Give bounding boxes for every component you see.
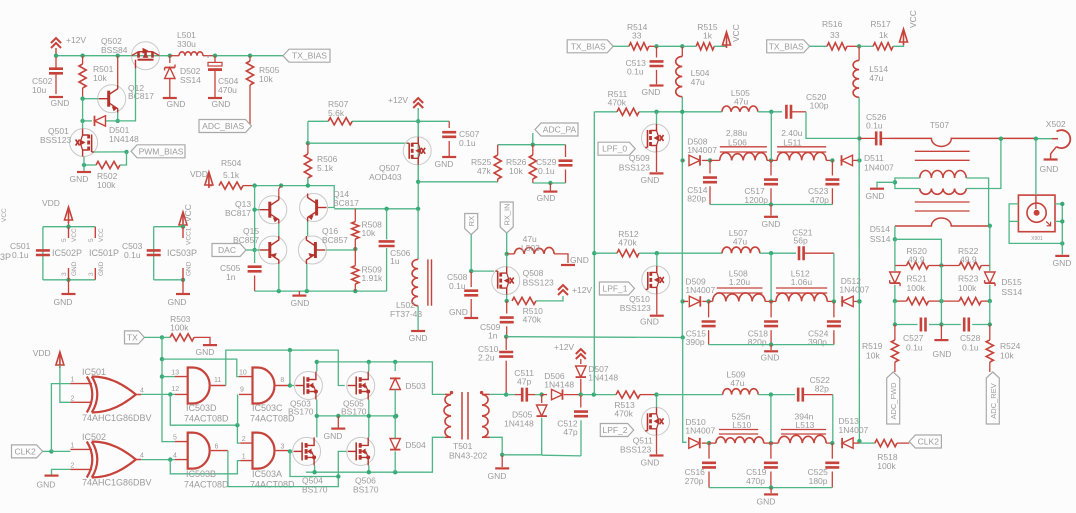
svg-text:C527: C527 [903, 333, 924, 343]
svg-text:GND: GND [537, 193, 556, 203]
svg-text:X502: X502 [1046, 119, 1066, 129]
svg-text:VCC: VCC [183, 204, 193, 222]
svg-text:13: 13 [171, 370, 179, 377]
svg-text:GND: GND [409, 333, 428, 343]
svg-text:820p: 820p [687, 194, 706, 204]
svg-text:390p: 390p [808, 337, 827, 347]
svg-text:3: 3 [281, 444, 285, 451]
svg-text:ADC_PA: ADC_PA [543, 125, 577, 135]
svg-text:10k: 10k [866, 351, 880, 361]
svg-text:GND: GND [757, 497, 776, 507]
svg-text:R521: R521 [907, 274, 928, 284]
svg-text:49.9: 49.9 [960, 255, 977, 265]
svg-text:IC501: IC501 [82, 367, 106, 377]
svg-text:270p: 270p [685, 476, 704, 486]
svg-text:GND: GND [642, 87, 661, 97]
svg-text:1N4007: 1N4007 [687, 145, 717, 155]
svg-text:74ACT08D: 74ACT08D [250, 480, 295, 490]
svg-text:GND: GND [70, 174, 89, 184]
svg-text:47p: 47p [563, 427, 577, 437]
svg-text:10k: 10k [93, 73, 107, 83]
svg-text:D511: D511 [864, 153, 884, 163]
svg-text:LPF_2: LPF_2 [602, 425, 627, 435]
svg-text:PWM_BIAS: PWM_BIAS [139, 146, 184, 156]
svg-text:+12V: +12V [554, 342, 574, 352]
svg-text:1: 1 [242, 454, 246, 461]
svg-text:33: 33 [830, 30, 840, 40]
svg-text:BSS123: BSS123 [620, 445, 651, 455]
svg-text:ADC_REV: ADC_REV [989, 383, 998, 418]
svg-text:FT37-43: FT37-43 [390, 309, 422, 319]
svg-text:L506: L506 [728, 137, 747, 147]
svg-text:74AHC1G86DBV: 74AHC1G86DBV [82, 478, 152, 488]
svg-text:33: 33 [632, 31, 642, 41]
svg-text:82p: 82p [815, 384, 829, 394]
svg-text:BS170: BS170 [341, 407, 367, 417]
svg-text:GND: GND [212, 99, 231, 109]
svg-text:BSS123: BSS123 [619, 163, 650, 173]
svg-text:10k: 10k [259, 74, 273, 84]
svg-text:GND: GND [98, 261, 105, 276]
svg-text:BSS84: BSS84 [101, 45, 128, 55]
svg-text:GND: GND [167, 99, 186, 109]
svg-text:100k: 100k [877, 461, 896, 471]
svg-text:47u: 47u [733, 237, 747, 247]
svg-text:10k: 10k [362, 228, 376, 238]
svg-text:L511: L511 [783, 137, 802, 147]
svg-text:GND: GND [641, 175, 660, 185]
svg-text:47u: 47u [734, 97, 748, 107]
svg-text:R504: R504 [221, 158, 242, 168]
svg-text:10u: 10u [32, 85, 46, 95]
svg-text:ADC_BIAS: ADC_BIAS [202, 121, 244, 131]
svg-text:0.1u: 0.1u [962, 343, 979, 353]
svg-text:470k: 470k [523, 315, 542, 325]
svg-text:47p: 47p [517, 377, 531, 387]
svg-text:VCC: VCC [98, 228, 105, 242]
svg-text:TX_BIAS: TX_BIAS [769, 41, 804, 51]
svg-text:1n: 1n [226, 272, 236, 282]
svg-text:L513: L513 [796, 420, 815, 430]
svg-text:2.2u: 2.2u [478, 353, 495, 363]
svg-text:GND: GND [435, 159, 454, 169]
svg-text:100k: 100k [170, 323, 189, 333]
svg-text:CLK2: CLK2 [14, 446, 36, 456]
svg-text:820p: 820p [748, 337, 767, 347]
svg-text:0.1u: 0.1u [459, 138, 476, 148]
svg-text:4: 4 [173, 453, 177, 460]
svg-text:IC501P: IC501P [89, 248, 119, 258]
svg-text:47u: 47u [691, 77, 705, 87]
svg-text:ADC_FWD: ADC_FWD [889, 382, 898, 420]
svg-text:IC503D: IC503D [186, 403, 217, 413]
svg-text:GND: GND [168, 297, 187, 307]
svg-text:BC857: BC857 [322, 235, 348, 245]
svg-text:IC502: IC502 [82, 432, 106, 442]
svg-text:3P: 3P [0, 252, 11, 262]
svg-text:47k: 47k [477, 166, 491, 176]
svg-text:R523: R523 [958, 274, 979, 284]
svg-text:180p: 180p [809, 476, 828, 486]
svg-text:BSS123: BSS123 [523, 278, 554, 288]
svg-text:GND: GND [54, 297, 73, 307]
svg-text:IC502P: IC502P [52, 248, 82, 258]
svg-text:49.9: 49.9 [908, 255, 925, 265]
svg-text:6: 6 [215, 444, 219, 451]
svg-text:TX: TX [127, 332, 138, 342]
svg-text:1k: 1k [879, 30, 889, 40]
svg-text:VDD: VDD [33, 348, 51, 358]
svg-text:VDD: VDD [42, 198, 60, 208]
svg-text:D515: D515 [1001, 277, 1022, 287]
svg-text:Q508: Q508 [523, 268, 544, 278]
svg-text:AOD403: AOD403 [369, 172, 402, 182]
svg-text:2: 2 [71, 462, 75, 469]
svg-text:BC817: BC817 [225, 208, 251, 218]
svg-text:470p: 470p [746, 476, 765, 486]
svg-text:5.6k: 5.6k [328, 108, 345, 118]
svg-text:5: 5 [61, 238, 68, 242]
svg-text:470k: 470k [608, 98, 627, 108]
svg-text:IC503C: IC503C [252, 403, 283, 413]
svg-text:1: 1 [71, 377, 75, 384]
svg-text:11: 11 [214, 377, 221, 384]
svg-text:12: 12 [171, 386, 179, 393]
svg-text:SS14: SS14 [1001, 287, 1022, 297]
svg-text:BSS123: BSS123 [40, 135, 71, 145]
svg-text:1.91k: 1.91k [362, 273, 384, 283]
svg-text:BS170: BS170 [302, 485, 328, 495]
svg-text:GND: GND [641, 458, 660, 468]
svg-text:R517: R517 [870, 19, 891, 29]
svg-text:5: 5 [88, 238, 95, 242]
svg-text:VCC1: VCC1 [186, 227, 193, 245]
svg-text:GND: GND [186, 261, 193, 276]
svg-text:47u: 47u [730, 378, 744, 388]
svg-text:1N4007: 1N4007 [685, 426, 715, 436]
svg-text:100k: 100k [958, 283, 977, 293]
svg-text:GND: GND [488, 471, 507, 481]
svg-text:0.1u: 0.1u [906, 343, 923, 353]
svg-text:BS170: BS170 [353, 485, 379, 495]
svg-text:1N4148: 1N4148 [504, 419, 534, 429]
svg-text:1k: 1k [703, 31, 713, 41]
svg-text:GND: GND [71, 261, 78, 276]
svg-text:390p: 390p [686, 337, 705, 347]
svg-text:GND: GND [51, 98, 70, 108]
svg-text:2: 2 [71, 395, 75, 402]
svg-text:BC817: BC817 [128, 91, 154, 101]
svg-text:IC503P: IC503P [167, 248, 197, 258]
svg-text:1N4148: 1N4148 [588, 373, 618, 383]
svg-text:5: 5 [173, 435, 177, 442]
svg-text:1N4148: 1N4148 [109, 134, 139, 144]
svg-text:GND: GND [570, 255, 589, 265]
svg-text:1N4148: 1N4148 [544, 380, 574, 390]
svg-text:T507: T507 [930, 120, 950, 130]
svg-text:DAC: DAC [218, 245, 236, 255]
svg-text:0.1u: 0.1u [449, 281, 466, 291]
svg-text:1u: 1u [390, 256, 400, 266]
svg-text:74ACT08D: 74ACT08D [184, 414, 229, 424]
svg-text:LPF_0: LPF_0 [602, 144, 627, 154]
svg-text:GND: GND [37, 480, 56, 490]
svg-text:LPF_1: LPF_1 [602, 284, 627, 294]
svg-text:SS14: SS14 [870, 234, 891, 244]
svg-text:CLK2: CLK2 [918, 437, 940, 447]
svg-text:4: 4 [140, 388, 144, 395]
svg-text:R516: R516 [822, 19, 843, 29]
svg-text:VCC: VCC [908, 10, 918, 28]
svg-text:470u: 470u [218, 85, 237, 95]
svg-text:TX_BIAS: TX_BIAS [571, 41, 606, 51]
svg-text:D503: D503 [405, 381, 426, 391]
svg-text:0.1u: 0.1u [627, 67, 644, 77]
svg-text:BC817: BC817 [333, 198, 359, 208]
svg-text:TX_BIAS: TX_BIAS [292, 51, 327, 61]
svg-text:330u: 330u [177, 39, 196, 49]
svg-text:0.1u: 0.1u [538, 166, 555, 176]
svg-text:1N4007: 1N4007 [839, 285, 869, 295]
svg-text:RX: RX [467, 216, 476, 226]
svg-text:56p: 56p [794, 236, 808, 246]
svg-text:GND: GND [762, 219, 781, 229]
svg-text:100p: 100p [810, 101, 829, 111]
svg-text:1: 1 [71, 442, 75, 449]
svg-text:D504: D504 [405, 440, 426, 450]
svg-text:1200p: 1200p [744, 195, 768, 205]
svg-text:1.06u: 1.06u [791, 277, 813, 287]
svg-text:GND: GND [291, 298, 310, 308]
svg-text:GND: GND [1053, 258, 1072, 268]
svg-text:BN43-202: BN43-202 [449, 451, 488, 461]
svg-text:1N4007: 1N4007 [839, 425, 869, 435]
svg-text:+12V: +12V [388, 95, 408, 105]
svg-text:R519: R519 [862, 341, 883, 351]
svg-text:100k: 100k [97, 180, 116, 190]
svg-text:R524: R524 [1000, 341, 1021, 351]
svg-text:0.1u: 0.1u [866, 121, 883, 131]
svg-text:SS14: SS14 [180, 75, 201, 85]
svg-text:3: 3 [61, 272, 68, 276]
svg-text:BSS123: BSS123 [620, 303, 651, 313]
svg-text:D514: D514 [870, 224, 891, 234]
svg-text:C528: C528 [960, 333, 981, 343]
svg-text:IC503A: IC503A [252, 469, 282, 479]
svg-text:VCC: VCC [71, 228, 78, 242]
svg-text:0.1u: 0.1u [12, 250, 29, 260]
svg-text:470k: 470k [618, 238, 637, 248]
svg-text:IC503B: IC503B [186, 469, 216, 479]
svg-text:VDD: VDD [190, 169, 208, 179]
svg-text:1.20u: 1.20u [729, 277, 751, 287]
svg-text:*: * [207, 54, 210, 63]
svg-text:1N4007: 1N4007 [685, 285, 715, 295]
svg-text:GND: GND [640, 317, 659, 327]
svg-text:4: 4 [140, 453, 144, 460]
svg-text:GND: GND [196, 347, 215, 357]
svg-text:GND: GND [933, 349, 952, 359]
svg-text:74ACT08D: 74ACT08D [184, 480, 229, 490]
svg-text:74AHC1G86DBV: 74AHC1G86DBV [82, 413, 152, 423]
svg-text:L510: L510 [732, 420, 751, 430]
svg-text:L503: L503 [521, 243, 540, 253]
svg-text:5.1k: 5.1k [317, 163, 334, 173]
svg-text:Q509: Q509 [629, 153, 650, 163]
svg-text:+12V: +12V [66, 35, 86, 45]
svg-text:GND: GND [761, 353, 780, 363]
svg-text:GND: GND [866, 191, 885, 201]
svg-text:VCC: VCC [1, 208, 8, 222]
svg-text:2: 2 [242, 436, 246, 443]
svg-text:1N4007: 1N4007 [864, 163, 894, 173]
svg-text:RX_IN: RX_IN [503, 203, 512, 225]
svg-text:470k: 470k [614, 409, 633, 419]
svg-text:T501: T501 [453, 441, 473, 451]
svg-text:+12V: +12V [572, 285, 592, 295]
svg-text:1n: 1n [488, 331, 498, 341]
svg-text:10: 10 [239, 370, 247, 377]
svg-text:100k: 100k [907, 283, 926, 293]
svg-text:GND: GND [1040, 164, 1059, 174]
svg-text:5.1k: 5.1k [223, 170, 240, 180]
svg-text:8: 8 [280, 377, 284, 384]
svg-text:10k: 10k [509, 166, 523, 176]
svg-text:10k: 10k [1000, 351, 1014, 361]
svg-text:BS170: BS170 [288, 407, 314, 417]
svg-text:GND: GND [324, 431, 343, 441]
svg-text:VCC: VCC [731, 24, 741, 42]
svg-text:9: 9 [240, 386, 244, 393]
svg-text:470p: 470p [810, 195, 829, 205]
svg-text:X901: X901 [1031, 236, 1043, 242]
svg-text:GND: GND [449, 307, 468, 317]
svg-text:3: 3 [88, 272, 95, 276]
svg-text:47u: 47u [869, 73, 883, 83]
svg-text:0.1u: 0.1u [124, 250, 141, 260]
